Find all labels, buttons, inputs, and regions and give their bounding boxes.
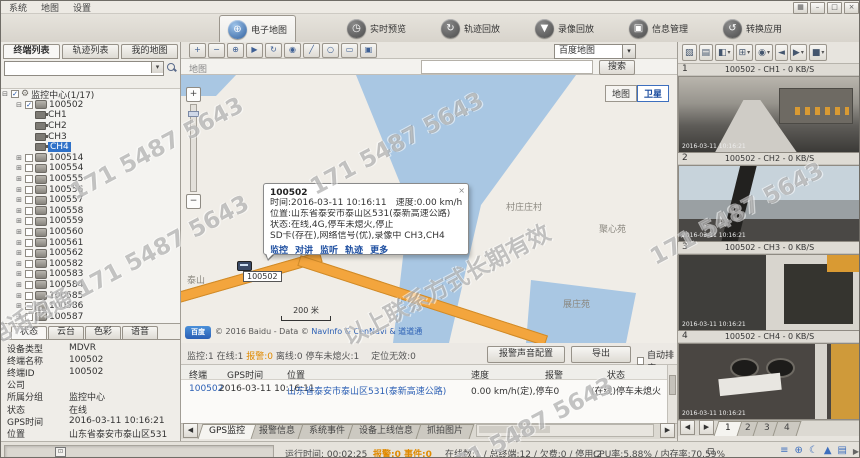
- page-label: 3: [764, 422, 770, 435]
- nav-live-preview-label: 实时预览: [370, 22, 406, 35]
- vehicle-icon: [35, 175, 47, 184]
- chevron-down-icon[interactable]: ▾: [747, 46, 750, 60]
- terminal-label[interactable]: 100558: [49, 206, 83, 216]
- popup-status: 状态:在线,4G,停车未熄火,停止: [270, 220, 462, 231]
- expand-icon[interactable]: ⊞: [15, 196, 23, 204]
- nav-video-playback-label: 录像回放: [558, 22, 594, 35]
- vehicle-info-popup: × 100502 时间:2016-03-11 10:16:11 速度:0.00 …: [263, 183, 469, 255]
- video-index: 3: [682, 242, 688, 253]
- nav-track-playback-label: 轨迹回放: [464, 22, 500, 35]
- record-button[interactable]: ▤: [699, 44, 714, 61]
- layer-satellite-button[interactable]: 卫星: [637, 85, 669, 102]
- video-label: 100502 - CH2 - 0 KB/S: [678, 153, 860, 164]
- expand-icon[interactable]: ⊞: [15, 207, 23, 215]
- page-right-icon[interactable]: ▶: [699, 420, 714, 435]
- vehicle-icon: [35, 291, 47, 300]
- camera-icon: [35, 111, 46, 119]
- expand-icon[interactable]: ⊞: [15, 175, 23, 183]
- collapse-icon[interactable]: ⊟: [15, 101, 23, 109]
- terminal-label[interactable]: 100583: [49, 269, 83, 279]
- tree-terminal[interactable]: ⊞ 100559: [1, 216, 180, 227]
- terminal-label[interactable]: 100585: [49, 291, 83, 301]
- col-gps-time[interactable]: GPS时间: [227, 368, 263, 381]
- tray-icon[interactable]: ▤: [838, 445, 847, 456]
- vehicle-icon: [35, 196, 47, 205]
- col-speed[interactable]: 速度: [471, 368, 489, 381]
- map-tool-button[interactable]: ○: [322, 43, 339, 58]
- scrollbar-thumb[interactable]: [669, 375, 676, 395]
- detail-row: 终端ID 100502: [7, 366, 180, 378]
- status-alarm: 报警:0: [246, 352, 273, 362]
- collapse-icon[interactable]: ⊟: [1, 90, 9, 98]
- detail-label: 终端名称: [7, 354, 69, 367]
- video-timestamp: 2016-03-11 10:16:21: [682, 321, 746, 328]
- video-timestamp: 2016-03-11 10:16:21: [682, 232, 746, 239]
- expand-icon[interactable]: ⊞: [15, 313, 23, 321]
- tree-terminal[interactable]: ⊞ 100582: [1, 259, 180, 270]
- layer-map-button[interactable]: 地图: [605, 85, 637, 102]
- table-scrollbar[interactable]: [667, 365, 677, 423]
- expand-icon[interactable]: ⊞: [15, 228, 23, 236]
- terminal-tree: ⊟ ⚙ 监控中心(1/17) ⊟ 100502 CH1 CH2 CH: [1, 88, 180, 323]
- tree-channel-ch4-selected[interactable]: CH4: [1, 142, 180, 153]
- col-status[interactable]: 状态: [607, 368, 625, 381]
- device-label[interactable]: 100502: [49, 100, 83, 110]
- scene-equipment: [718, 372, 781, 395]
- channel-label[interactable]: CH1: [48, 110, 67, 120]
- detail-row: 状态 在线: [7, 403, 180, 415]
- detail-value: 100502: [69, 367, 103, 377]
- tree-terminal[interactable]: ⊞ 100586: [1, 301, 180, 312]
- scene-sky: [679, 166, 860, 200]
- terminal-label[interactable]: 100556: [49, 185, 83, 195]
- device-checkbox[interactable]: [25, 101, 33, 109]
- attribution-text: © 2016 Baidu - Data ©: [215, 327, 311, 336]
- play-button[interactable]: ▶▾: [790, 44, 807, 61]
- scrollbar-thumb[interactable]: [479, 426, 549, 433]
- zoom-out-button[interactable]: −: [186, 194, 201, 209]
- video-timestamp: 2016-03-11 10:16:21: [682, 143, 746, 150]
- chevron-down-icon[interactable]: ▾: [622, 44, 636, 59]
- expand-icon[interactable]: ⊞: [15, 292, 23, 300]
- tray-icon[interactable]: ≡: [780, 445, 788, 456]
- chevron-down-icon[interactable]: ▾: [151, 62, 163, 73]
- map-tool-button[interactable]: +: [189, 43, 206, 58]
- zoom-in-button[interactable]: +: [186, 87, 201, 102]
- map-canvas[interactable]: 村庄庄村 聚心苑 展庄苑 泰山 + − 地图 卫星 × 100502 时间:20…: [181, 75, 677, 343]
- cell-speed: 0.00 km/h(定),停车0: [471, 384, 559, 397]
- nav-info-management-label: 信息管理: [652, 22, 688, 35]
- tab-audio[interactable]: 语音: [122, 326, 158, 339]
- link-more[interactable]: 更多: [370, 243, 388, 256]
- video-toolbar: ▧ ▤ ◧▾ ⊞▾ ◉▾ ◄ ▶▾ ■▾: [678, 42, 860, 64]
- vehicle-icon: [35, 280, 47, 289]
- scene-strip: [831, 344, 860, 419]
- tray-icon[interactable]: ▲: [824, 445, 832, 456]
- tray-icons: ≡⊕☾▲▤: [780, 445, 847, 456]
- scale-text: 200 米: [293, 306, 319, 315]
- vehicle-icon: [35, 206, 47, 215]
- tree-channel-ch3[interactable]: CH3: [1, 131, 180, 142]
- baidu-logo: 百度: [185, 326, 211, 339]
- tray-icon[interactable]: ⊕: [794, 445, 802, 456]
- close-icon[interactable]: ×: [458, 186, 465, 195]
- tree-terminal[interactable]: ⊞ 100558: [1, 206, 180, 217]
- tab-snapshots[interactable]: 抓拍图片: [416, 424, 475, 439]
- info-management-icon: ▣: [629, 19, 648, 38]
- link-listen[interactable]: 监听: [320, 243, 338, 256]
- scene-highlight: [827, 255, 860, 272]
- vehicle-icon: [35, 164, 47, 173]
- video-playback-icon: ▼: [535, 19, 554, 38]
- alerts-text: 报警:0 事件:0: [373, 447, 432, 458]
- channel-label[interactable]: CH3: [48, 132, 67, 142]
- expand-icon[interactable]: ⊞: [15, 186, 23, 194]
- page-label: 2: [745, 422, 751, 435]
- search-icon[interactable]: [167, 63, 177, 73]
- expand-icon[interactable]: ⊞: [15, 302, 23, 310]
- video-header: 4100502 - CH4 - 0 KB/S: [678, 331, 860, 343]
- terminal-list: ⊞ 100514 ⊞ 100554 ⊞ 100555: [1, 153, 180, 323]
- terminal-checkbox[interactable]: [25, 217, 33, 225]
- status-progress-bar: ⊡: [4, 445, 274, 458]
- nav-video-playback[interactable]: ▼ 录像回放: [527, 16, 602, 40]
- expand-icon[interactable]: ⊞: [15, 154, 23, 162]
- tree-terminal[interactable]: ⊞ 100554: [1, 163, 180, 174]
- terminal-label[interactable]: 100586: [49, 301, 83, 311]
- chevron-down-icon[interactable]: ▾: [767, 46, 770, 60]
- tree-terminal[interactable]: ⊞ 100514: [1, 153, 180, 164]
- tree-channel-ch1[interactable]: CH1: [1, 110, 180, 121]
- video-page-4[interactable]: 4: [773, 421, 802, 436]
- tab-horizontal-scrollbar[interactable]: [476, 424, 654, 437]
- channel-label[interactable]: CH2: [48, 121, 67, 131]
- zoom-slider-thumb[interactable]: [188, 111, 199, 117]
- stop-icon: ■: [812, 46, 821, 60]
- maptype-toggle: 地图 卫星: [605, 85, 669, 102]
- scene-streak: [815, 344, 828, 419]
- channel-label[interactable]: CH4: [48, 142, 71, 152]
- terminal-label[interactable]: 100561: [49, 238, 83, 248]
- vehicle-icon: [35, 100, 47, 109]
- terminal-label[interactable]: 100514: [49, 153, 83, 163]
- expand-icon[interactable]: ⊞: [15, 270, 23, 278]
- expand-icon[interactable]: ⊞: [15, 281, 23, 289]
- tab-my-map[interactable]: 我的地图: [121, 44, 178, 59]
- basemap-select[interactable]: 百度地图▾: [554, 44, 636, 59]
- minimize-button[interactable]: –: [810, 2, 825, 14]
- terminal-checkbox[interactable]: [25, 249, 33, 257]
- terminal-search-input[interactable]: ▾: [4, 61, 164, 76]
- menubar: 系统 地图 设置 ▦ – □ ×: [1, 1, 860, 14]
- scene-cones: [795, 107, 849, 115]
- video-stream-ch2[interactable]: 2016-03-11 10:16:21: [678, 165, 860, 242]
- snapshot-icon: ▧: [685, 46, 694, 60]
- video-timestamp: 2016-03-11 10:16:21: [682, 410, 746, 417]
- terminal-label[interactable]: 100582: [49, 259, 83, 269]
- map-tool-button[interactable]: ▶: [246, 43, 263, 58]
- terminal-checkbox[interactable]: [25, 175, 33, 183]
- snapshot-button[interactable]: ▧: [682, 44, 697, 61]
- link-intercom[interactable]: 对讲: [295, 243, 313, 256]
- expand-icon[interactable]: ⊞: [15, 217, 23, 225]
- nav-info-management[interactable]: ▣ 信息管理: [621, 16, 696, 40]
- vehicle-icon: [35, 228, 47, 237]
- device-detail-panel: 状态 云台 色彩 语音 设备类型 MDVR 终端名称 100502 终端ID 1…: [1, 323, 180, 458]
- page-left-icon[interactable]: ◀: [680, 420, 695, 435]
- root-checkbox[interactable]: [11, 90, 19, 98]
- link-track[interactable]: 轨迹: [345, 243, 363, 256]
- map-tools: +−⊕▶↻◉╱○▭▣: [189, 43, 377, 58]
- progress-icon: ⊡: [55, 447, 66, 457]
- menu-map[interactable]: 地图: [41, 1, 59, 14]
- col-location[interactable]: 位置: [287, 368, 305, 381]
- map-tool-button[interactable]: −: [208, 43, 225, 58]
- nav-track-playback[interactable]: ↻ 轨迹回放: [433, 16, 508, 40]
- detail-value: 100502: [69, 355, 103, 365]
- popup-extra: SD卡(存在),网络信号(优),录像中 CH3,CH4: [270, 231, 462, 242]
- detail-row: 所属分组 监控中心: [7, 391, 180, 403]
- terminal-label[interactable]: 100554: [49, 163, 83, 173]
- terminal-label[interactable]: 100587: [49, 312, 83, 322]
- chevron-down-icon[interactable]: ▾: [821, 46, 824, 60]
- tab-status[interactable]: 状态: [11, 326, 47, 339]
- runtime-text: 运行时间: 00:02:25: [285, 447, 367, 458]
- tab-device-online[interactable]: 设备上线信息: [348, 424, 425, 439]
- emap-icon: ⊕: [228, 20, 247, 39]
- grid-layout-button[interactable]: ⊞▾: [736, 44, 754, 61]
- terminal-checkbox[interactable]: [25, 281, 33, 289]
- video-stream-ch4[interactable]: 2016-03-11 10:16:21: [678, 343, 860, 420]
- video-block-4: 4100502 - CH4 - 0 KB/S 2016-03-11 10:16:…: [678, 331, 860, 420]
- tab-label: 抓拍图片: [427, 425, 463, 438]
- terminal-checkbox[interactable]: [25, 270, 33, 278]
- layout-button[interactable]: ◧▾: [715, 44, 734, 61]
- vehicle-icon: [35, 312, 47, 321]
- terminal-checkbox[interactable]: [25, 239, 33, 247]
- video-stream-ch3[interactable]: 2016-03-11 10:16:21: [678, 254, 860, 331]
- tree-terminal[interactable]: ⊞ 100587: [1, 311, 180, 322]
- map-search-button[interactable]: 搜索: [599, 60, 635, 75]
- cpu-text: CPU率:5.88% / 内存率:70.59%: [593, 447, 725, 458]
- capture-button[interactable]: ◉▾: [755, 44, 773, 61]
- nav-emap[interactable]: ⊕ 电子地图: [219, 15, 296, 43]
- map-tool-button[interactable]: ◉: [284, 43, 301, 58]
- vehicle-icon: [35, 238, 47, 247]
- chevron-down-icon[interactable]: ▾: [801, 46, 804, 60]
- terminal-search-row: ▾: [1, 59, 180, 77]
- detail-label: 设备类型: [7, 342, 69, 355]
- expand-icon[interactable]: ⊞: [15, 249, 23, 257]
- cms-window: 系统 地图 设置 ▦ – □ × ⊕ 电子地图 ◷ 实时预览 ↻ 轨迹回放 ▼ …: [0, 0, 860, 458]
- grid-icon: ⊞: [739, 46, 747, 60]
- map-scale: 200 米: [281, 305, 331, 321]
- map-label: 聚心苑: [599, 222, 626, 235]
- statusbar: ⊡ 运行时间: 00:02:25 报警:0 事件:0 在线数:1 / 总终端:1…: [1, 441, 860, 458]
- auto-sort-checkbox[interactable]: [637, 357, 644, 365]
- terminal-checkbox[interactable]: [25, 260, 33, 268]
- expand-icon[interactable]: ⊞: [15, 260, 23, 268]
- tree-terminal[interactable]: ⊞ 100562: [1, 248, 180, 259]
- sidebar-tabs: 终端列表 轨迹列表 我的地图: [1, 42, 180, 59]
- popup-location: 位置:山东省泰安市泰山区531(泰新高速公路): [270, 209, 462, 220]
- tree-terminal[interactable]: ⊞ 100555: [1, 174, 180, 185]
- terminal-checkbox[interactable]: [25, 207, 33, 215]
- page-label: 4: [784, 422, 790, 435]
- chevron-down-icon[interactable]: ▾: [728, 46, 731, 60]
- export-button[interactable]: 导出: [571, 346, 631, 363]
- map-tool-button[interactable]: ↻: [265, 43, 282, 58]
- tray-icon[interactable]: ☾: [809, 445, 818, 456]
- tab-gps-monitor[interactable]: GPS监控: [198, 424, 257, 439]
- detail-tabs: 状态 云台 色彩 语音: [1, 324, 180, 339]
- terminal-label[interactable]: 100560: [49, 227, 83, 237]
- video-label: 100502 - CH3 - 0 KB/S: [678, 242, 860, 253]
- terminal-checkbox[interactable]: [25, 186, 33, 194]
- volume-icon: ◄: [778, 46, 785, 60]
- map-toolbar: +−⊕▶↻◉╱○▭▣ 百度地图▾: [181, 42, 677, 59]
- tree-terminal[interactable]: ⊞ 100556: [1, 184, 180, 195]
- map-label: 村庄庄村: [506, 200, 542, 213]
- menu-settings[interactable]: 设置: [73, 1, 91, 14]
- camera-icon: [35, 122, 46, 130]
- popup-links: 监控 对讲 监听 轨迹 更多: [270, 243, 462, 256]
- detail-row: GPS时间 2016-03-11 10:16:21: [7, 415, 180, 427]
- root-label[interactable]: 监控中心(1/17): [31, 88, 94, 101]
- terminal-label[interactable]: 100555: [49, 174, 83, 184]
- tab-label: GPS监控: [209, 425, 245, 438]
- terminal-label[interactable]: 100562: [49, 248, 83, 258]
- cell-location[interactable]: 山东省泰安市泰山区531(泰新高速公路): [287, 384, 446, 397]
- status-prefix: 监控:1 在线:1: [187, 352, 246, 362]
- map-attribution: © 2016 Baidu - Data © NavInfo & CenNavi …: [215, 326, 422, 337]
- page-label: 1: [725, 422, 731, 435]
- alarm-sound-config-button[interactable]: 报警声音配置: [487, 346, 565, 363]
- vehicle-icon: [35, 153, 47, 162]
- video-stream-ch1[interactable]: 2016-03-11 10:16:21: [678, 76, 860, 153]
- video-block-3: 3100502 - CH3 - 0 KB/S 2016-03-11 10:16:…: [678, 242, 860, 331]
- vehicle-icon: [35, 217, 47, 226]
- col-terminal[interactable]: 终端: [189, 368, 207, 381]
- terminal-checkbox[interactable]: [25, 313, 33, 321]
- tab-track-list[interactable]: 轨迹列表: [62, 44, 119, 59]
- tree-root[interactable]: ⊟ ⚙ 监控中心(1/17): [1, 89, 180, 100]
- tab-terminal-list[interactable]: 终端列表: [3, 44, 60, 59]
- scene-window: [784, 264, 853, 324]
- tree-terminal[interactable]: ⊞ 100584: [1, 280, 180, 291]
- detail-row: 终端名称 100502: [7, 354, 180, 366]
- attribution-links[interactable]: NavInfo & CenNavi & 道道通: [311, 327, 422, 336]
- vehicle-icon: [35, 249, 47, 258]
- tree-terminal[interactable]: ⊞ 100560: [1, 227, 180, 238]
- menu-system[interactable]: 系统: [9, 1, 27, 14]
- sidebar: 终端列表 轨迹列表 我的地图 ▾ ⊟ ⚙ 监控中心(1/17) ⊟ 100502: [1, 42, 181, 441]
- map-search-band: 地图 搜索: [181, 59, 677, 75]
- monitor-status-line: 监控:1 在线:1 报警:0 离线:0 停车未熄火:1 定位无效:0: [187, 349, 416, 362]
- col-alarm[interactable]: 报警: [545, 368, 563, 381]
- stop-button[interactable]: ■▾: [809, 44, 828, 61]
- video-header: 2100502 - CH2 - 0 KB/S: [678, 153, 860, 165]
- detail-row: 位置 山东省泰安市泰山区531: [7, 427, 180, 439]
- tree-terminal[interactable]: ⊞ 100557: [1, 195, 180, 206]
- volume-button[interactable]: ◄: [775, 44, 788, 61]
- vehicle-marker-label[interactable]: 100502: [243, 271, 282, 282]
- video-page-1[interactable]: 1: [714, 421, 743, 436]
- maximize-button[interactable]: □: [827, 2, 842, 14]
- terminal-checkbox[interactable]: [25, 292, 33, 300]
- terminal-label[interactable]: 100584: [49, 280, 83, 290]
- tab-ptz[interactable]: 云台: [48, 326, 84, 339]
- terminal-checkbox[interactable]: [25, 302, 33, 310]
- skin-button[interactable]: ▦: [793, 2, 808, 14]
- terminal-label[interactable]: 100559: [49, 216, 83, 226]
- video-page-strip: ◀ ▶ 1 2 3 4: [678, 420, 860, 436]
- popup-title: 100502: [270, 188, 462, 198]
- close-button[interactable]: ×: [844, 2, 859, 14]
- detail-label: 位置: [7, 427, 69, 440]
- video-header: 1100502 - CH1 - 0 KB/S: [678, 64, 860, 76]
- map-tool-button[interactable]: ▭: [341, 43, 358, 58]
- play-icon: ▶: [793, 46, 800, 60]
- detail-value: 2016-03-11 10:16:21: [69, 416, 165, 426]
- terminal-checkbox[interactable]: [25, 196, 33, 204]
- nav-switch-app-label: 转换应用: [746, 22, 782, 35]
- map-search-input[interactable]: [421, 60, 593, 74]
- cell-status: (在线)停车未熄火: [591, 384, 661, 397]
- video-block-1: 1100502 - CH1 - 0 KB/S 2016-03-11 10:16:…: [678, 64, 860, 153]
- detail-label: 公司: [7, 378, 69, 391]
- detail-value: MDVR: [69, 343, 96, 353]
- tree-terminal[interactable]: ⊞ 100561: [1, 237, 180, 248]
- tab-scroll-left-icon[interactable]: ◀: [183, 423, 198, 438]
- detail-value: 在线: [69, 403, 87, 416]
- map-tool-button[interactable]: ╱: [303, 43, 320, 58]
- tab-label: 设备上线信息: [359, 425, 413, 438]
- statusbar-arrow-icon[interactable]: ▶: [853, 447, 859, 456]
- live-preview-icon: ◷: [347, 19, 366, 38]
- zoom-slider[interactable]: [190, 104, 197, 192]
- nav-emap-label: 电子地图: [251, 23, 287, 36]
- track-playback-icon: ↻: [441, 19, 460, 38]
- map-tool-button[interactable]: ▣: [360, 43, 377, 58]
- terminal-checkbox[interactable]: [25, 154, 33, 162]
- terminal-label[interactable]: 100557: [49, 195, 83, 205]
- expand-icon[interactable]: ⊞: [15, 164, 23, 172]
- tree-channel-ch2[interactable]: CH2: [1, 121, 180, 132]
- terminal-checkbox[interactable]: [25, 228, 33, 236]
- tree-terminal[interactable]: ⊞ 100583: [1, 269, 180, 280]
- vehicle-icon: [35, 259, 47, 268]
- status-suffix: 离线:0 停车未熄火:1 定位无效:0: [273, 352, 416, 362]
- map-zoom-control: + −: [186, 87, 200, 209]
- monitor-band: 监控:1 在线:1 报警:0 离线:0 停车未熄火:1 定位无效:0 报警声音配…: [181, 343, 677, 365]
- tree-terminal[interactable]: ⊞ 100585: [1, 290, 180, 301]
- expand-icon[interactable]: ⊞: [15, 239, 23, 247]
- map-tool-button[interactable]: ⊕: [227, 43, 244, 58]
- terminal-checkbox[interactable]: [25, 164, 33, 172]
- scale-bar: [281, 316, 331, 321]
- status-box-icon[interactable]: ⊡: [707, 447, 715, 457]
- tab-scroll-right-icon[interactable]: ▶: [660, 423, 675, 438]
- tree-device-100502[interactable]: ⊟ 100502: [1, 100, 180, 111]
- maptype-label: 地图: [189, 62, 207, 75]
- vehicle-marker-icon[interactable]: [237, 261, 252, 271]
- tab-color[interactable]: 色彩: [85, 326, 121, 339]
- capture-icon: ◉: [758, 46, 766, 60]
- nav-live-preview[interactable]: ◷ 实时预览: [339, 16, 414, 40]
- detail-row: 设备类型 MDVR: [7, 342, 180, 354]
- nav-switch-app[interactable]: ↺ 转换应用: [715, 16, 790, 40]
